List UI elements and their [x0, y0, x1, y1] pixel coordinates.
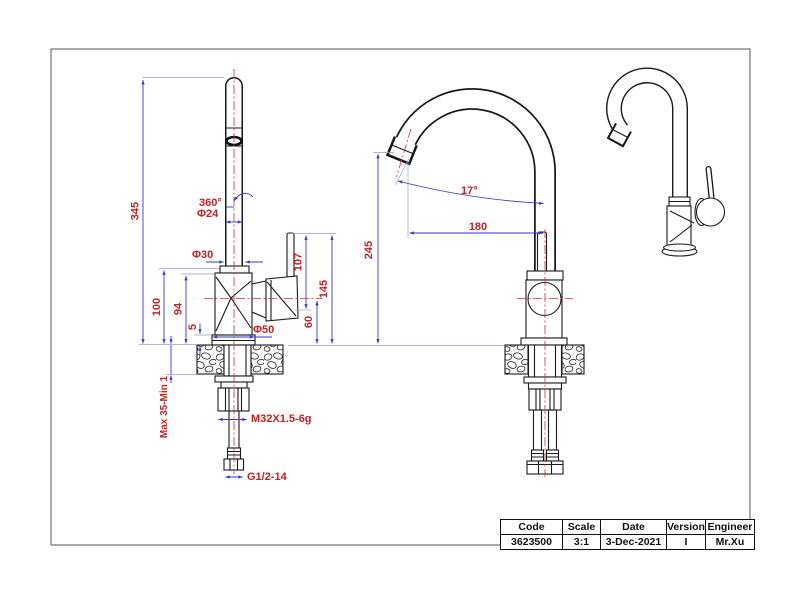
- dimension-label: 17°: [461, 185, 478, 197]
- dimension-245: 245: [363, 154, 378, 344]
- dimension-label: 94: [173, 302, 185, 315]
- countertop-section-front: [562, 345, 584, 374]
- perspective-view: [613, 75, 725, 256]
- scale-header: Scale: [563, 520, 601, 535]
- dimension-label: Max 35-Min 1: [159, 375, 170, 438]
- dimension-label: 107: [293, 253, 305, 271]
- supply-hose: [549, 410, 557, 450]
- dimension-label: 345: [130, 202, 142, 220]
- title-block-table: Code Scale Date Version Engineer 3623500…: [500, 519, 755, 550]
- version-value: I: [667, 535, 706, 550]
- mounting-shank-side: [218, 388, 249, 411]
- title-block-value-row: 3623500 3:1 3-Dec-2021 I Mr.Xu: [501, 535, 755, 550]
- dimension-label: G1/2-14: [247, 471, 288, 483]
- dimension-label: 180: [469, 221, 487, 233]
- supply-hose: [534, 410, 542, 450]
- date-header: Date: [601, 520, 667, 535]
- front-elevation-view: [391, 99, 584, 474]
- title-block-header-row: Code Scale Date Version Engineer: [501, 520, 755, 535]
- title-block: Code Scale Date Version Engineer 3623500…: [500, 519, 755, 550]
- label-thread-g12: G1/2-14: [225, 471, 287, 483]
- dimension-180: 180: [410, 221, 544, 233]
- drawing-frame: [51, 49, 750, 545]
- engineer-header: Engineer: [705, 520, 754, 535]
- engineer-value: Mr.Xu: [705, 535, 754, 550]
- date-value: 3-Dec-2021: [601, 535, 667, 550]
- dimension-mounting-thickness: Max 35-Min 1: [159, 336, 171, 438]
- dimension-345: 345: [130, 80, 144, 344]
- dimension-label: 245: [363, 241, 375, 259]
- countertop-section-front: [505, 345, 528, 374]
- dimension-label: Φ50: [253, 324, 274, 336]
- dimension-label: 100: [151, 298, 163, 316]
- dimension-label: 145: [318, 280, 330, 298]
- faucet-technical-drawing-page: { "labels": { "len_345": "345", "rot_360…: [0, 0, 800, 600]
- dimension-60: 60: [303, 301, 317, 344]
- code-header: Code: [501, 520, 563, 535]
- scale-value: 3:1: [563, 535, 601, 550]
- dimension-100: 100: [151, 271, 164, 344]
- code-value: 3623500: [501, 535, 563, 550]
- dimension-angle-17: 17°: [398, 181, 544, 204]
- valve-cap-front: [528, 283, 561, 316]
- dimension-94: 94: [173, 276, 187, 344]
- version-header: Version: [667, 520, 706, 535]
- dimension-label: Φ30: [192, 249, 213, 261]
- faucet-body-side: [215, 273, 252, 335]
- technical-drawing-canvas: 345 100 94 5 Max 35-Min 1 360° Φ24 Φ30 Φ…: [0, 0, 800, 600]
- dimension-label: 5: [187, 324, 199, 330]
- dimension-label: Φ24: [197, 208, 219, 220]
- countertop-section-left: [197, 345, 224, 374]
- countertop-section-left: [251, 345, 283, 374]
- handle-knob-perspective: [697, 198, 725, 226]
- dimension-145: 145: [318, 236, 332, 344]
- dimension-label: M32X1.5-6g: [251, 413, 312, 425]
- dimension-label: 60: [303, 316, 315, 328]
